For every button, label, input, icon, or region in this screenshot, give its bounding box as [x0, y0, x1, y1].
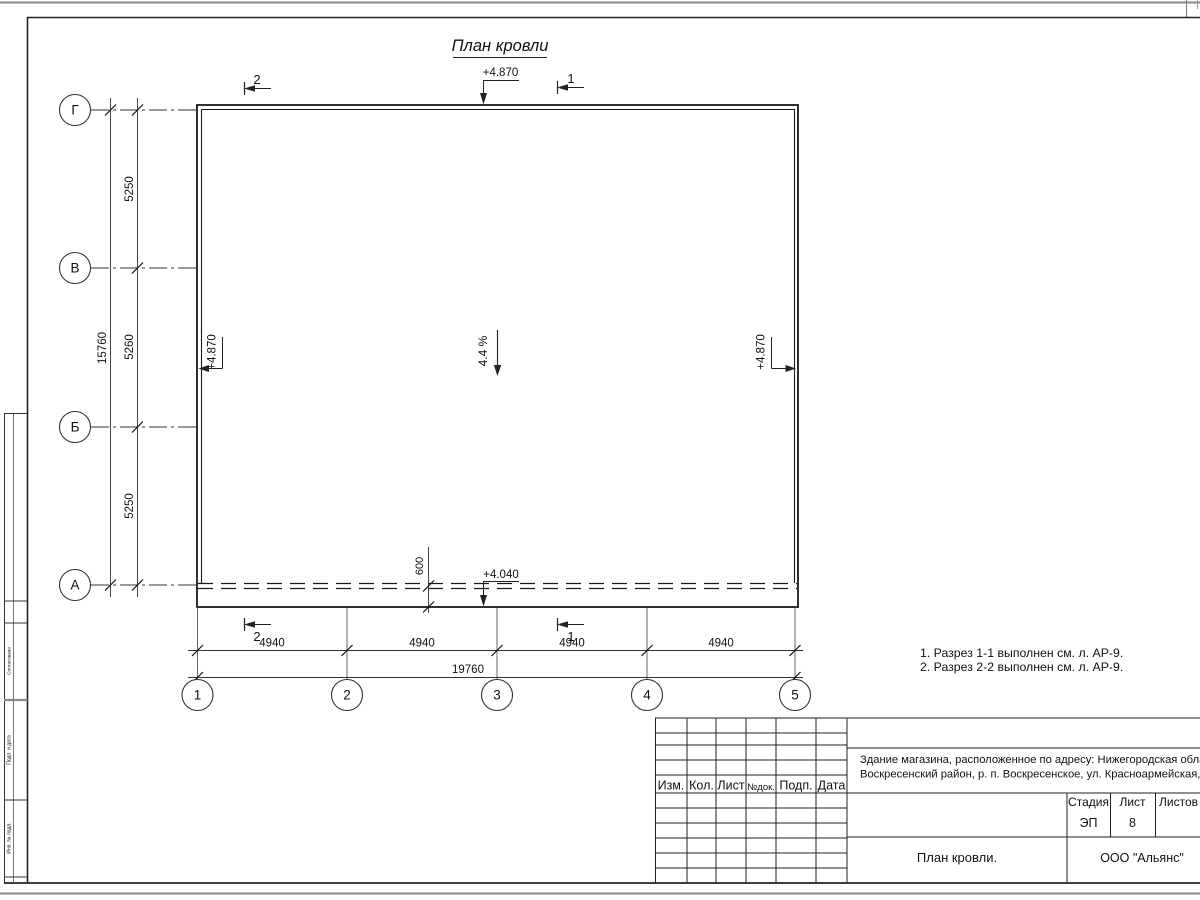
dim-label: 4940: [559, 638, 585, 650]
revision-header-cell: Кол.: [689, 779, 714, 793]
bottom-dimensions: 4940 4940 4940 4940 19760: [188, 638, 803, 684]
axis-label: 5: [791, 688, 799, 703]
roof-plan-drawing: Согласовано Подп. и дата Инв. № подл. Пл…: [0, 0, 1200, 900]
section-label: 1: [567, 71, 574, 86]
notes: 1. Разрез 1-1 выполнен см. л. АР-9. 2. Р…: [920, 646, 1123, 674]
drawing-sheet: Согласовано Подп. и дата Инв. № подл. Пл…: [0, 0, 1200, 900]
stage-sheet-table: Стадия Лист Листов ЭП 8: [1068, 795, 1198, 830]
project-description: Здание магазина, расположенное по адресу…: [860, 754, 1200, 781]
dim-label: 4940: [708, 638, 734, 650]
left-dimensions: 5250 5260 5250 15760: [97, 98, 143, 597]
section-mark-1-top: 1: [557, 71, 584, 94]
sheet-number: 8: [1129, 816, 1136, 830]
axis-label: Г: [71, 103, 79, 118]
section-arrow-icon: [244, 85, 255, 92]
dim-label: 5250: [124, 176, 136, 202]
sheets-label: Листов: [1159, 795, 1198, 809]
slope-label: 4.4 %: [476, 335, 490, 366]
dim-label: 5260: [124, 334, 136, 360]
col-grid-lines: [198, 607, 796, 679]
revision-header-cell: Изм.: [658, 779, 685, 793]
sheet-title: План кровли: [452, 37, 549, 58]
elevation-label: +4.870: [207, 334, 219, 370]
revision-header-cell: Дата: [818, 779, 846, 793]
revision-header-cell: Подп.: [779, 779, 812, 793]
revision-header-cell: №док.: [747, 782, 775, 793]
side-stamp-label: Инв. № подл.: [7, 822, 13, 853]
sheet-label: Лист: [1119, 795, 1146, 809]
side-stamp-label: Подп. и дата: [7, 735, 13, 765]
revision-header-cell: Лист: [717, 779, 744, 793]
elevation-label: +4.870: [483, 67, 519, 79]
section-arrow-icon: [557, 84, 568, 91]
title-block: Изм. Кол. Лист №док. Подп. Дата Здание м…: [655, 718, 1200, 883]
note-line: 1. Разрез 1-1 выполнен см. л. АР-9.: [920, 646, 1123, 660]
axis-label: 2: [343, 688, 351, 703]
revision-header: Изм. Кол. Лист №док. Подп. Дата: [658, 779, 846, 794]
section-arrow-icon: [557, 621, 568, 628]
col-grid-bubbles: 1 2 3 4 5: [182, 680, 811, 711]
project-line: Здание магазина, расположенное по адресу…: [860, 754, 1200, 766]
stage-label: Стадия: [1068, 795, 1109, 809]
elevation-label: +4.870: [756, 334, 768, 370]
company-name: ООО "Альянс": [1100, 851, 1184, 865]
elevation-label: +4.040: [483, 569, 519, 581]
dim-label: 600: [414, 557, 426, 575]
project-line: Воскресенский район, р. п. Воскресенское…: [860, 769, 1200, 781]
sheet-title-text: План кровли: [452, 37, 549, 55]
axis-label: 4: [643, 688, 651, 703]
dim-label: 4940: [409, 638, 435, 650]
section-arrow-icon: [244, 621, 255, 628]
note-line: 2. Разрез 2-2 выполнен см. л. АР-9.: [920, 660, 1123, 674]
row-grid-bubbles: Г В Б А: [60, 95, 91, 601]
side-stamp-label: Согласовано: [7, 647, 12, 675]
dim-total-label: 19760: [452, 664, 484, 676]
axis-label: В: [70, 261, 79, 276]
dim-label: 4940: [259, 638, 285, 650]
axis-label: Б: [71, 420, 80, 435]
side-stamp: Согласовано Подп. и дата Инв. № подл.: [4, 413, 28, 883]
axis-label: 1: [194, 688, 202, 703]
axis-label: 3: [493, 688, 501, 703]
stage-value: ЭП: [1080, 816, 1098, 830]
arrow-down-icon: [480, 93, 487, 105]
dim-total-label: 15760: [97, 332, 109, 364]
elevation-top: +4.870: [480, 67, 519, 105]
drawing-name: План кровли.: [917, 850, 997, 865]
dim-label: 5250: [124, 493, 136, 519]
section-label: 2: [253, 72, 260, 87]
section-mark-2-top: 2: [244, 72, 271, 95]
axis-label: А: [70, 578, 79, 593]
